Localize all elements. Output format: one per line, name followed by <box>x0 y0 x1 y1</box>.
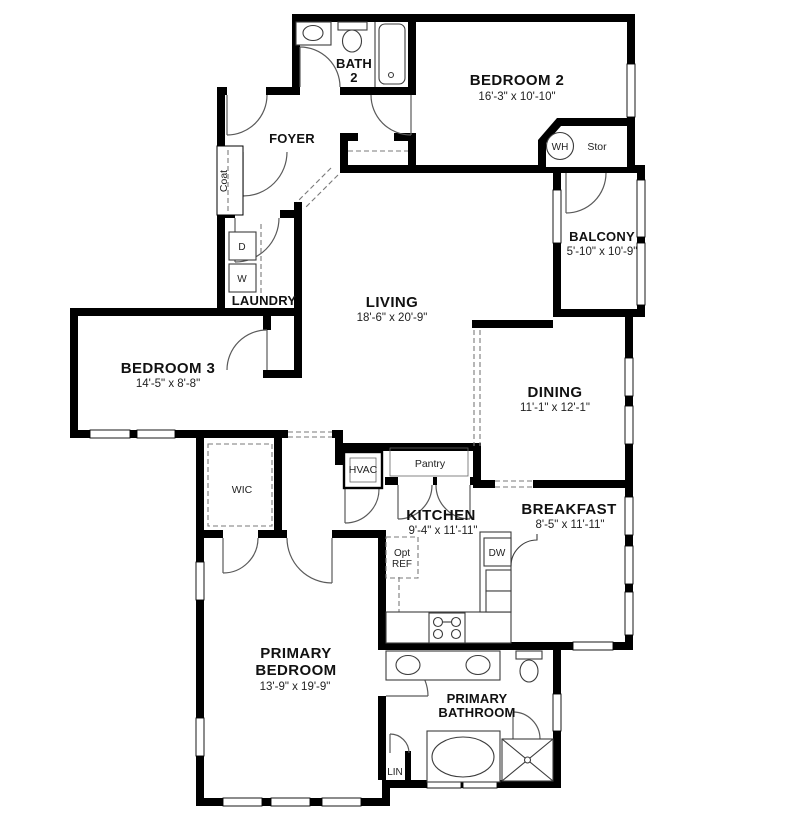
room-label-pantry: Pantry <box>415 458 446 470</box>
label-dryer: D <box>238 242 245 253</box>
bedroom2-door <box>371 95 411 135</box>
room-label-living: LIVING <box>366 294 418 311</box>
dims-bedroom3: 14'-5" x 8'-8" <box>136 378 200 390</box>
window-balcony-left <box>553 190 561 243</box>
primary-bedroom-door <box>287 538 332 583</box>
kitchen-sink-cabinet-2 <box>486 591 511 612</box>
window-dining-right-1 <box>625 358 633 396</box>
room-label-balcony: BALCONY <box>569 229 635 244</box>
room-label-primary-bedroom-line1: PRIMARY <box>260 645 331 662</box>
linen-door <box>390 734 409 753</box>
vanity-sink-1 <box>396 656 420 675</box>
hvac-door <box>345 489 379 523</box>
floor-plan-svg: BATH 2 BEDROOM 2 16'-3" x 10'-10" FOYER … <box>0 0 788 826</box>
room-label-hvac: HVAC <box>349 464 378 476</box>
room-label-laundry: LAUNDRY <box>232 293 297 308</box>
label-water-heater: WH <box>552 142 569 153</box>
window-breakfast-right-2 <box>625 546 633 584</box>
label-opt-ref-line1: Opt <box>394 548 410 559</box>
label-coat: Coat <box>218 170 230 192</box>
room-label-bath2-line2: 2 <box>350 70 357 85</box>
kitchen-sink-cabinet-1 <box>486 570 511 591</box>
coat-closet-door <box>243 152 287 196</box>
label-stor: Stor <box>587 141 607 153</box>
window-primary-left-1 <box>196 562 204 600</box>
room-label-primary-bedroom-line2: BEDROOM <box>255 662 336 679</box>
window-primary-bottom-2 <box>271 798 310 806</box>
room-label-kitchen: KITCHEN <box>406 507 475 524</box>
room-label-wic: WIC <box>232 484 253 496</box>
bath2-toilet-tank <box>338 22 367 30</box>
window-dining-right-2 <box>625 406 633 444</box>
dims-bedroom2: 16'-3" x 10'-10" <box>478 91 555 103</box>
window-balcony-right-1 <box>637 180 645 237</box>
label-linen: LIN <box>387 767 403 778</box>
bath2-sink-icon <box>303 26 323 41</box>
vanity-sink-2 <box>466 656 490 675</box>
window-breakfast-right-1 <box>625 497 633 535</box>
room-label-bedroom3: BEDROOM 3 <box>121 360 215 377</box>
dims-breakfast: 8'-5" x 11'-11" <box>535 519 604 531</box>
windows <box>90 64 645 806</box>
room-label-bath2-line1: BATH <box>336 56 372 71</box>
bath2-door <box>300 47 340 87</box>
window-primary-left-2 <box>196 718 204 756</box>
bathroom-toilet-tank <box>516 651 542 659</box>
dims-primary-bedroom: 13'-9" x 19'-9" <box>260 681 331 693</box>
breakfast-bar-curve <box>511 534 537 566</box>
entry-door <box>227 95 267 135</box>
room-label-primary-bathroom-line1: PRIMARY <box>447 691 508 706</box>
wic-door <box>223 538 258 573</box>
bedroom3-door <box>227 330 267 370</box>
dims-living: 18'-6" x 20'-9" <box>357 312 428 324</box>
room-label-bedroom2: BEDROOM 2 <box>470 72 564 89</box>
window-bathroom-right <box>553 694 561 731</box>
floor-plan-page: BATH 2 BEDROOM 2 16'-3" x 10'-10" FOYER … <box>0 0 788 826</box>
window-bedroom2-right <box>627 64 635 117</box>
label-dishwasher: DW <box>489 548 506 559</box>
dims-balcony: 5'-10" x 10'-9" <box>567 246 638 258</box>
window-primary-bottom-3 <box>322 798 361 806</box>
bath2-toilet-icon <box>343 30 362 52</box>
window-breakfast-right-3 <box>625 592 633 635</box>
label-opt-ref-line2: REF <box>392 559 412 570</box>
window-breakfast-bottom <box>573 642 613 650</box>
room-label-breakfast: BREAKFAST <box>521 501 616 518</box>
stor-balcony-door <box>566 173 606 213</box>
shower-door <box>513 712 540 739</box>
window-primary-bottom-1 <box>223 798 262 806</box>
window-bedroom3-bottom-2 <box>137 430 175 438</box>
window-balcony-right-2 <box>637 243 645 305</box>
dims-dining: 11'-1" x 12'-1" <box>520 402 590 414</box>
bath2-tub-icon <box>379 24 405 84</box>
range-icon <box>429 613 465 643</box>
dims-kitchen: 9'-4" x 11'-11" <box>408 525 477 537</box>
room-label-primary-bathroom-line2: BATHROOM <box>438 705 515 720</box>
label-washer: W <box>237 274 247 285</box>
window-bedroom3-bottom-1 <box>90 430 130 438</box>
room-label-dining: DINING <box>528 384 583 401</box>
room-label-foyer: FOYER <box>269 131 315 146</box>
bathroom-toilet-icon <box>520 660 538 682</box>
